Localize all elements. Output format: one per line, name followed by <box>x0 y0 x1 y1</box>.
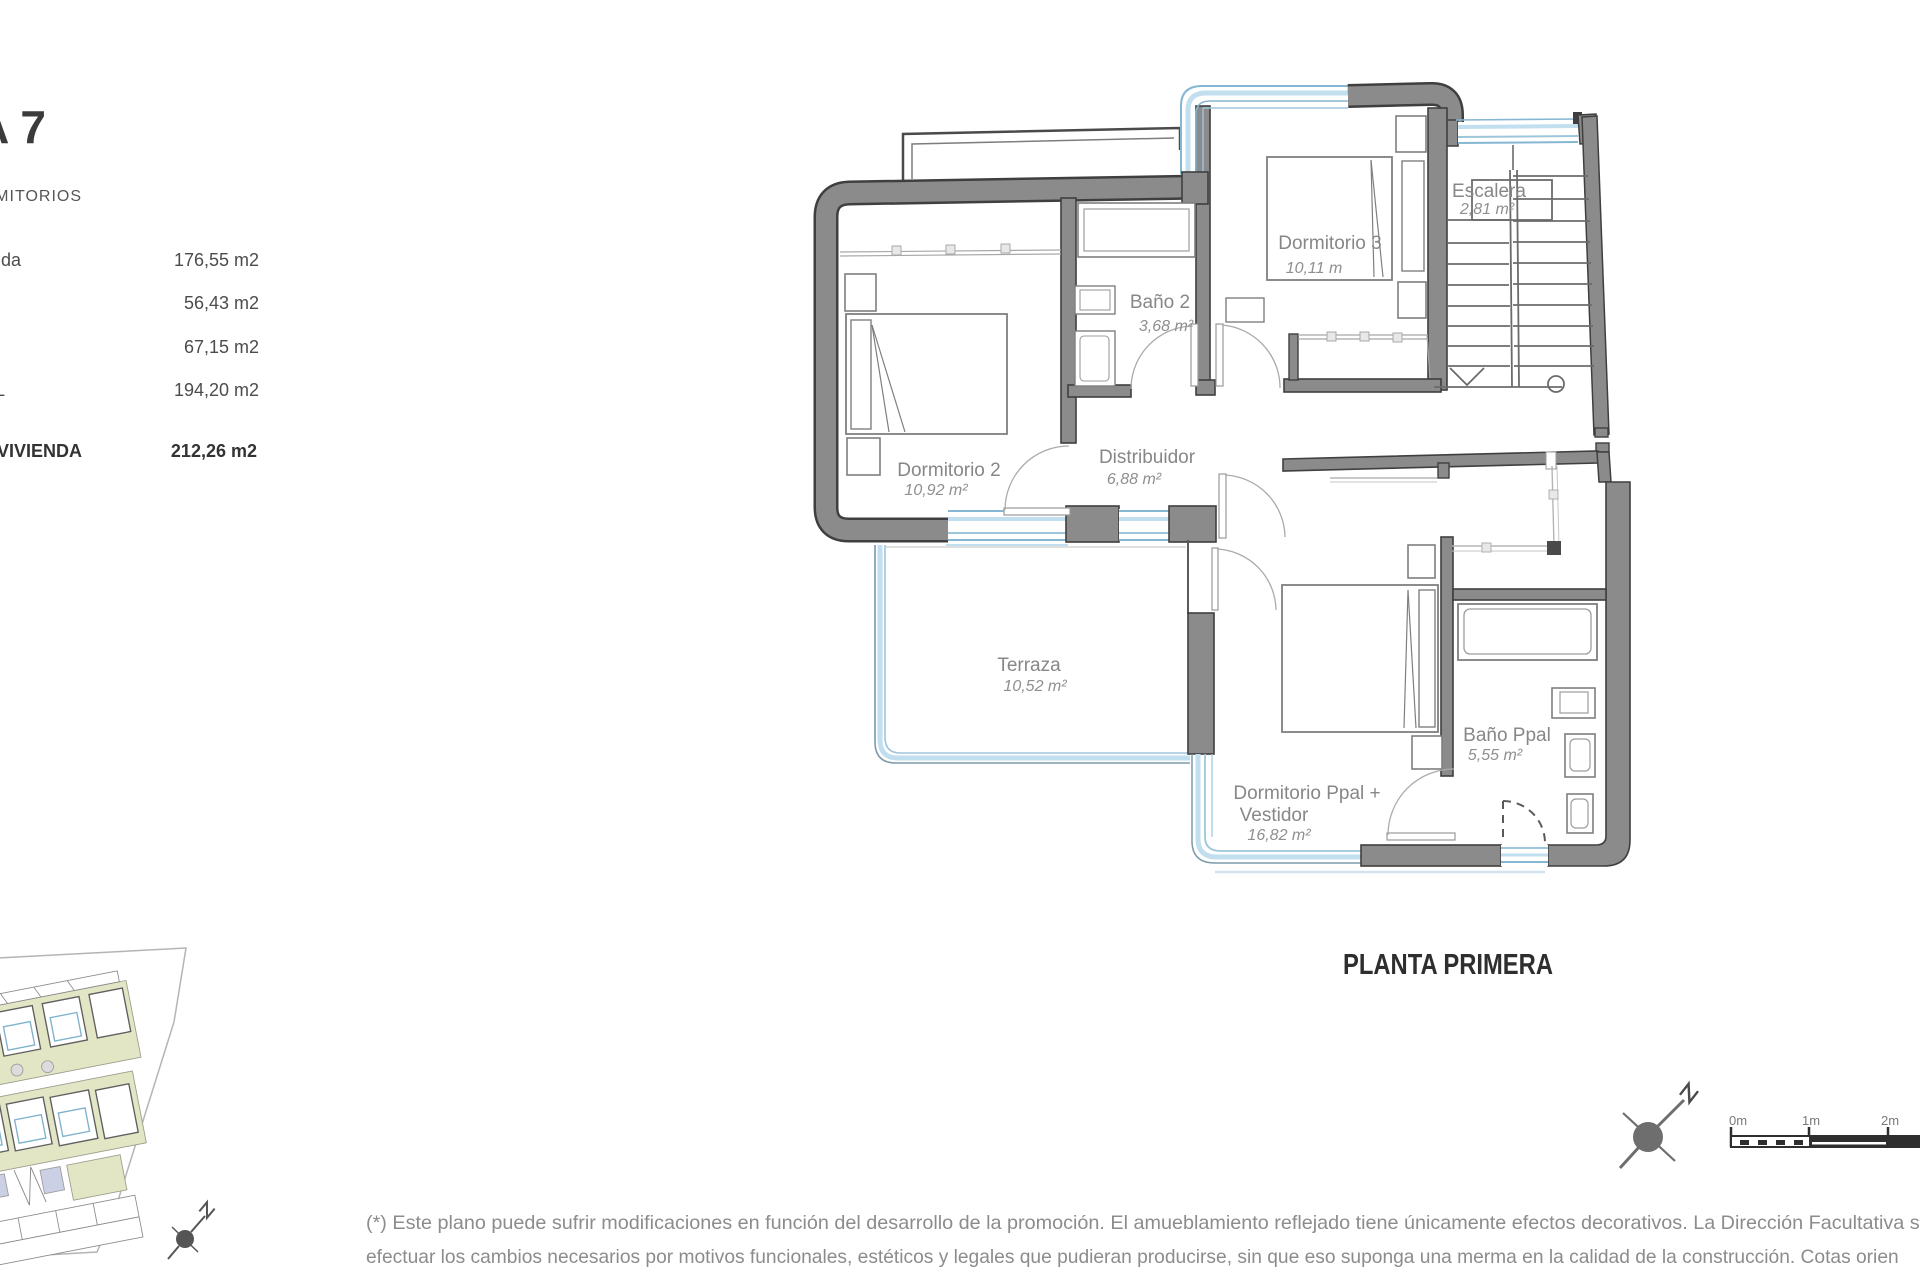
svg-text:(*) Este plano puede sufrir mo: (*) Este plano puede sufrir modificacion… <box>366 1212 1920 1234</box>
svg-text:Terraza: Terraza <box>997 655 1061 676</box>
svg-text:Superficie construida: Superficie construida <box>0 250 22 270</box>
svg-text:194,20 m2: 194,20 m2 <box>174 380 259 400</box>
svg-text:Baño 2: Baño 2 <box>1130 292 1190 313</box>
svg-text:6,88 m²: 6,88 m² <box>1107 471 1162 488</box>
svg-text:3,68 m²: 3,68 m² <box>1139 318 1194 335</box>
svg-text:5,55 m²: 5,55 m² <box>1468 747 1523 764</box>
svg-text:56,43 m2: 56,43 m2 <box>184 293 259 313</box>
svg-text:PLANTA PRIMERA: PLANTA PRIMERA <box>1343 949 1553 981</box>
svg-text:Dormitorio 3: Dormitorio 3 <box>1278 233 1381 254</box>
svg-text:Dormitorio 2: Dormitorio 2 <box>897 460 1000 481</box>
svg-text:10,92 m²: 10,92 m² <box>904 482 968 499</box>
svg-text:212,26 m2: 212,26 m2 <box>171 441 257 461</box>
svg-text:Distribuidor: Distribuidor <box>1099 447 1196 468</box>
svg-text:efectuar los cambios necesario: efectuar los cambios necesarios por moti… <box>366 1247 1899 1268</box>
svg-text:2,81 m²: 2,81 m² <box>1459 201 1515 218</box>
svg-text:TOTAL VIVIENDA: TOTAL VIVIENDA <box>0 441 82 461</box>
svg-text:3 DORMITORIOS: 3 DORMITORIOS <box>0 188 82 205</box>
svg-text:Baño Ppal: Baño Ppal <box>1463 725 1551 746</box>
svg-text:10,11 m: 10,11 m <box>1286 260 1343 277</box>
svg-text:10,52 m²: 10,52 m² <box>1003 678 1067 695</box>
svg-text:2m: 2m <box>1881 1113 1899 1128</box>
svg-text:Vestidor: Vestidor <box>1240 805 1309 826</box>
svg-text:VILLA 7: VILLA 7 <box>0 101 46 153</box>
svg-text:Dormitorio Ppal +: Dormitorio Ppal + <box>1233 783 1380 804</box>
svg-text:0m: 0m <box>1729 1113 1747 1128</box>
svg-text:1m: 1m <box>1802 1113 1820 1128</box>
svg-text:67,15 m2: 67,15 m2 <box>184 337 259 357</box>
svg-text:Escalera: Escalera <box>1452 181 1526 202</box>
svg-text:16,82 m²: 16,82 m² <box>1247 827 1311 844</box>
svg-text:176,55 m2: 176,55 m2 <box>174 250 259 270</box>
svg-text:TOTAL: TOTAL <box>0 380 5 400</box>
